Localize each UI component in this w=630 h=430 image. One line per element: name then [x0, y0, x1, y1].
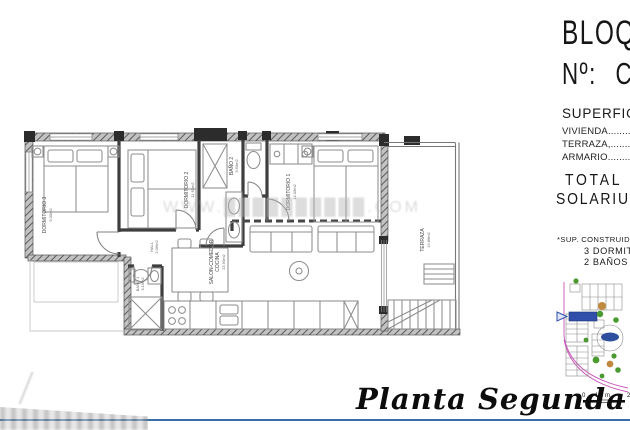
svg-text:13.86m2: 13.86m2 — [426, 231, 431, 247]
number-label: Nº: — [562, 56, 597, 91]
floor-plan-drawing: DORMITORIO 3 9.00m2 DORMITORIO 2 11.62m2… — [0, 0, 630, 430]
room-labels: DORMITORIO 3 9.00m2 DORMITORIO 2 11.62m2… — [42, 157, 431, 292]
toilet-wc — [246, 143, 261, 169]
windows — [26, 134, 387, 312]
site-trees — [573, 278, 620, 378]
site-pool — [601, 333, 619, 342]
sofa-left — [250, 226, 312, 252]
svg-text:9.00m2: 9.00m2 — [48, 208, 53, 222]
interior-walls — [119, 140, 267, 331]
surface-row-vivienda: VIVIENDA................................… — [562, 126, 630, 137]
surfaces-footnote: *SUP. CONSTRUIDAS — [557, 235, 630, 244]
kitchen-counter — [164, 301, 358, 329]
location-arrow-icon — [557, 312, 567, 321]
program-bedrooms: 3 DORMITORIOS — [584, 246, 630, 256]
block-number: Nº:C — [562, 56, 630, 92]
stairs-lower — [388, 300, 456, 329]
fixtures-bano1 — [129, 268, 162, 330]
watermark: WWW.██████████.COM — [163, 197, 421, 217]
wall-pillars — [24, 128, 420, 314]
faded-photo-edge — [0, 372, 54, 404]
site-location-map — [556, 276, 630, 396]
total-line: TOTAL _ 9 — [565, 172, 630, 190]
plan-title: Planta Segunda — [356, 382, 626, 416]
solarium-line: SOLARIUM_ — [556, 191, 630, 209]
lower-patio — [30, 258, 124, 331]
number-value: C — [616, 56, 630, 91]
sofa-right — [318, 226, 374, 252]
svg-text:23.90m2: 23.90m2 — [221, 253, 226, 269]
stairs-upper — [424, 264, 454, 284]
building-label: BLOQUE — [562, 14, 630, 53]
svg-text:14.09m2: 14.09m2 — [292, 183, 297, 199]
coffee-table — [290, 262, 309, 281]
svg-text:3.16m2: 3.16m2 — [140, 277, 145, 291]
surfaces-title: SUPERFICIES — [562, 106, 630, 121]
svg-text:11.62m2: 11.62m2 — [190, 182, 195, 198]
highlighted-unit — [569, 312, 597, 321]
surface-row-armario: ARMARIO.................................… — [562, 152, 630, 163]
svg-text:2.06m2: 2.06m2 — [154, 240, 159, 254]
surface-row-terraza: TERRAZA,................................… — [562, 139, 630, 150]
floor-plan-sheet: { "title_block": { "building_label": "BL… — [0, 0, 630, 430]
svg-text:3.60m2: 3.60m2 — [234, 159, 239, 173]
program-bathrooms: 2 BAÑOS — [584, 257, 628, 267]
shower-bano2 — [203, 144, 227, 188]
site-feature-circle-2 — [607, 361, 614, 368]
site-feature-circle — [598, 302, 606, 310]
